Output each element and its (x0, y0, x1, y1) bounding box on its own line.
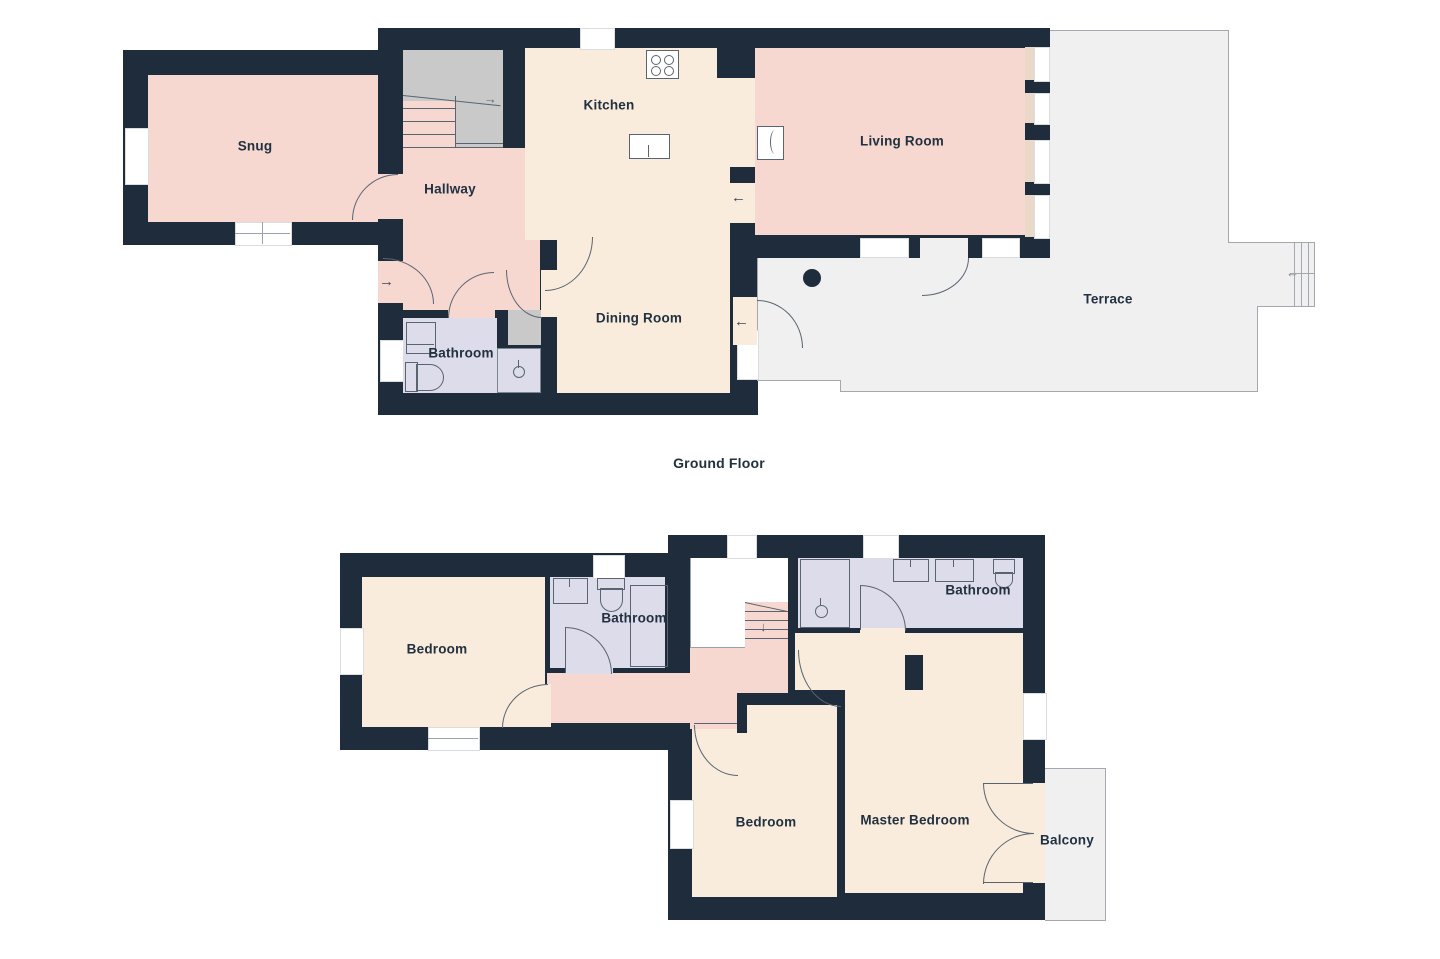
living-window-right-3 (1034, 140, 1050, 184)
ff-bath-right-sink-1-tap-icon (910, 559, 911, 567)
room-bedroom-mid-upper (747, 705, 837, 729)
ff-right-window-top-2 (863, 535, 899, 559)
label-bedroom-mid: Bedroom (736, 815, 797, 830)
balcony-outline-right (1105, 768, 1106, 921)
living-window-right-1 (1034, 47, 1050, 82)
stove-icon (646, 50, 679, 79)
gf-shower-handle-icon (518, 360, 519, 368)
ff-left-window-side (340, 628, 364, 675)
terrace-outline-ext-right (1314, 242, 1315, 307)
living-window-right-3-sill (1025, 140, 1034, 182)
label-master-bedroom: Master Bedroom (860, 813, 969, 828)
living-window-right-1-sill (1025, 47, 1034, 80)
kitchen-island-divider-icon (648, 145, 649, 157)
ff-bedroom-mid-notch-wall (737, 693, 747, 733)
ff-vestibule-step-wall (905, 655, 923, 690)
dining-terrace-arrow-icon: ← (734, 314, 749, 329)
label-balcony: Balcony (1040, 833, 1094, 848)
label-terrace: Terrace (1083, 292, 1132, 307)
ff-left-window-bottom-mid (428, 738, 478, 739)
kitchen-window-top (580, 28, 615, 50)
ff-shower-icon (800, 559, 850, 628)
ff-right-window-top-1 (727, 535, 757, 559)
stove-burner-4-icon (664, 66, 674, 76)
label-ff-bathroom-right: Bathroom (945, 583, 1010, 598)
gf-shower-drain-icon (513, 366, 525, 378)
living-window-right-2-sill (1025, 93, 1034, 123)
gf-stairs-tread-2 (403, 121, 455, 122)
snug-window-bottom (235, 222, 292, 246)
terrace-step-tread-3 (1308, 243, 1309, 306)
stove-burner-3-icon (651, 66, 661, 76)
label-ff-bathroom-left: Bathroom (601, 611, 666, 626)
stove-burner-1-icon (651, 55, 661, 65)
ff-bath-left-sink-icon (553, 578, 588, 604)
living-window-right-2 (1034, 93, 1050, 125)
terrace-outline-right1 (1228, 30, 1229, 242)
ff-bath-right-sink-2-tap-icon (953, 559, 954, 567)
ff-bedroom-mid-window-left (670, 800, 694, 849)
terrace-area-right (1050, 30, 1228, 258)
ff-master-window-right (1023, 693, 1047, 740)
snug-window-left (125, 128, 149, 185)
terrace-outline-bottom-left (757, 380, 841, 381)
terrace-step-tread-2 (1301, 243, 1302, 306)
gf-living-entry-arrow-icon: ← (731, 190, 746, 205)
ff-bath-right-sink-2-icon (935, 559, 974, 582)
label-living-room: Living Room (860, 134, 944, 149)
terrace-outline-bottom (840, 391, 1258, 392)
ff-bedroom-mid-door-leaf (694, 723, 737, 724)
living-window-right-4-sill (1025, 195, 1034, 237)
ff-left-window-top (593, 555, 625, 579)
gf-bath-window-left (380, 340, 404, 382)
gf-stairs-up-arrow-icon: → (483, 91, 497, 105)
entry-arrow-icon: → (379, 274, 394, 289)
gf-stairs-divider (455, 96, 456, 148)
terrace-outline-step-left (840, 380, 841, 392)
stove-burner-2-icon (664, 55, 674, 65)
terrace-outline-right2 (1257, 306, 1258, 392)
ff-stairs-tread-4 (745, 638, 788, 639)
label-kitchen: Kitchen (584, 98, 635, 113)
floor-caption-ground: Ground Floor (673, 455, 765, 471)
ff-stairs-tread-3 (745, 629, 788, 630)
label-snug: Snug (238, 139, 273, 154)
label-bedroom-left: Bedroom (407, 642, 468, 657)
ff-bath-left-toilet-bowl-icon (600, 588, 623, 612)
label-hallway: Hallway (424, 182, 476, 197)
gf-toilet-bowl-icon (416, 364, 444, 391)
ff-left-window-bottom (428, 727, 480, 751)
gf-kitchen-living-passage (730, 78, 755, 167)
ff-stairs-tread-2 (745, 620, 788, 621)
living-window-bottom-2 (982, 238, 1020, 258)
gf-stairs-tread-1 (403, 108, 455, 109)
terrace-outline-ext-bottom (1257, 306, 1315, 307)
gf-stairs-step-edge (455, 143, 503, 144)
terrace-area-main (840, 258, 1258, 392)
ff-bath-left-sink-tap-icon (569, 578, 570, 587)
living-fireplace-curve-icon (770, 130, 780, 154)
gf-kitchen-notch-wall (717, 48, 730, 78)
ff-bath-left-tub-icon (630, 585, 668, 667)
living-window-right-4 (1034, 195, 1050, 239)
ff-landing-a (547, 673, 690, 723)
label-gf-bathroom: Bathroom (428, 346, 493, 361)
ff-shower-head-icon (815, 605, 828, 618)
terrace-outline-top (1050, 30, 1229, 31)
ff-shower-stem-icon (820, 598, 821, 606)
balcony-outline-top (1045, 768, 1106, 769)
ff-landing-b (690, 648, 737, 729)
gf-bath-top-wall-right (495, 310, 508, 318)
gf-bath-top-wall-left (403, 310, 448, 318)
gf-stairs-tread-3 (403, 134, 455, 135)
room-kitchen (525, 48, 730, 240)
terrace-lamp-icon (803, 269, 821, 287)
label-dining-room: Dining Room (596, 311, 682, 326)
kitchen-island-icon (629, 134, 670, 159)
ff-stairs-tread-1 (745, 611, 788, 612)
terrace-steps-arrow-icon: ← (1286, 266, 1299, 279)
living-terrace-door-opening (920, 238, 968, 258)
living-window-bottom-1 (860, 238, 909, 258)
ff-bath-right-sink-1-icon (893, 559, 929, 582)
floor-plan-canvas: ← → ← ← (0, 0, 1440, 959)
ff-landing-c (737, 648, 788, 693)
snug-window-bottom-mid (235, 233, 290, 234)
balcony-outline-bottom (1045, 920, 1106, 921)
ff-stairs-down-arrow-icon: ↓ (760, 620, 767, 633)
